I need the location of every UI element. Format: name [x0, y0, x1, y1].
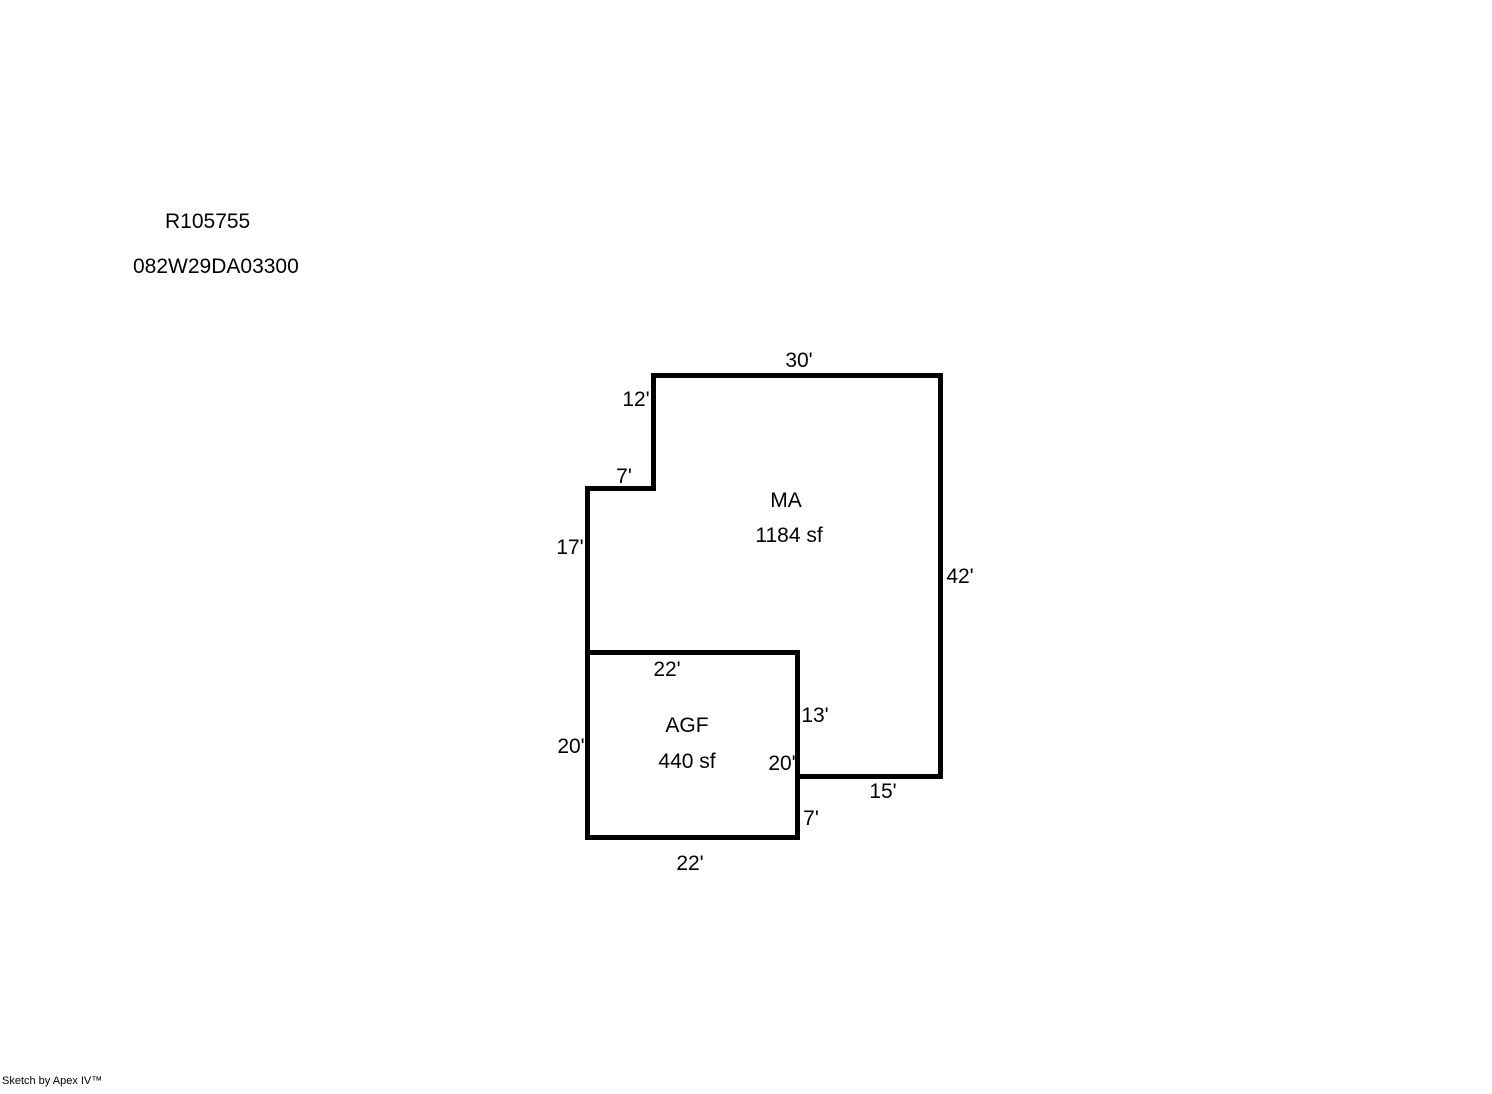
dim-label-ma-notch-horiz: 7'	[616, 466, 632, 488]
dim-label-agf-right-lower: 7'	[803, 808, 819, 830]
record-id-line-2: 082W29DA03300	[133, 255, 299, 279]
wall-ma-bottom	[795, 774, 943, 779]
sketch-credit: Sketch by Apex IV™	[2, 1075, 102, 1088]
dim-label-agf-right-upper: 13'	[801, 705, 828, 727]
record-id-line-1: R105755	[165, 210, 250, 234]
wall-ma-right	[938, 373, 943, 779]
dim-label-agf-bottom: 22'	[676, 853, 703, 875]
dim-label-left-upper: 17'	[556, 537, 583, 559]
dim-label-ma-right: 42'	[946, 566, 973, 588]
dim-label-agf-right-inner: 20'	[768, 753, 795, 775]
wall-agf-top	[585, 650, 800, 655]
dim-label-agf-left: 20'	[557, 736, 584, 758]
dim-label-ma-bottom: 15'	[869, 781, 896, 803]
area-label-agf-name: AGF	[665, 715, 708, 737]
wall-ma-notch-left	[651, 373, 656, 491]
dim-label-ma-top: 30'	[785, 350, 812, 372]
wall-left	[585, 486, 590, 840]
wall-agf-right	[795, 650, 800, 840]
dim-label-ma-notch-vert: 12'	[622, 389, 649, 411]
area-label-ma-size: 1184 sf	[755, 525, 822, 547]
wall-agf-bottom	[585, 835, 800, 840]
wall-ma-top	[651, 373, 943, 378]
sketch-page: R105755 082W29DA03300 30' 12' 7' 17' 42'…	[0, 0, 1492, 1094]
area-label-agf-size: 440 sf	[658, 751, 715, 773]
area-label-ma-name: MA	[770, 490, 802, 512]
dim-label-agf-top: 22'	[653, 659, 680, 681]
